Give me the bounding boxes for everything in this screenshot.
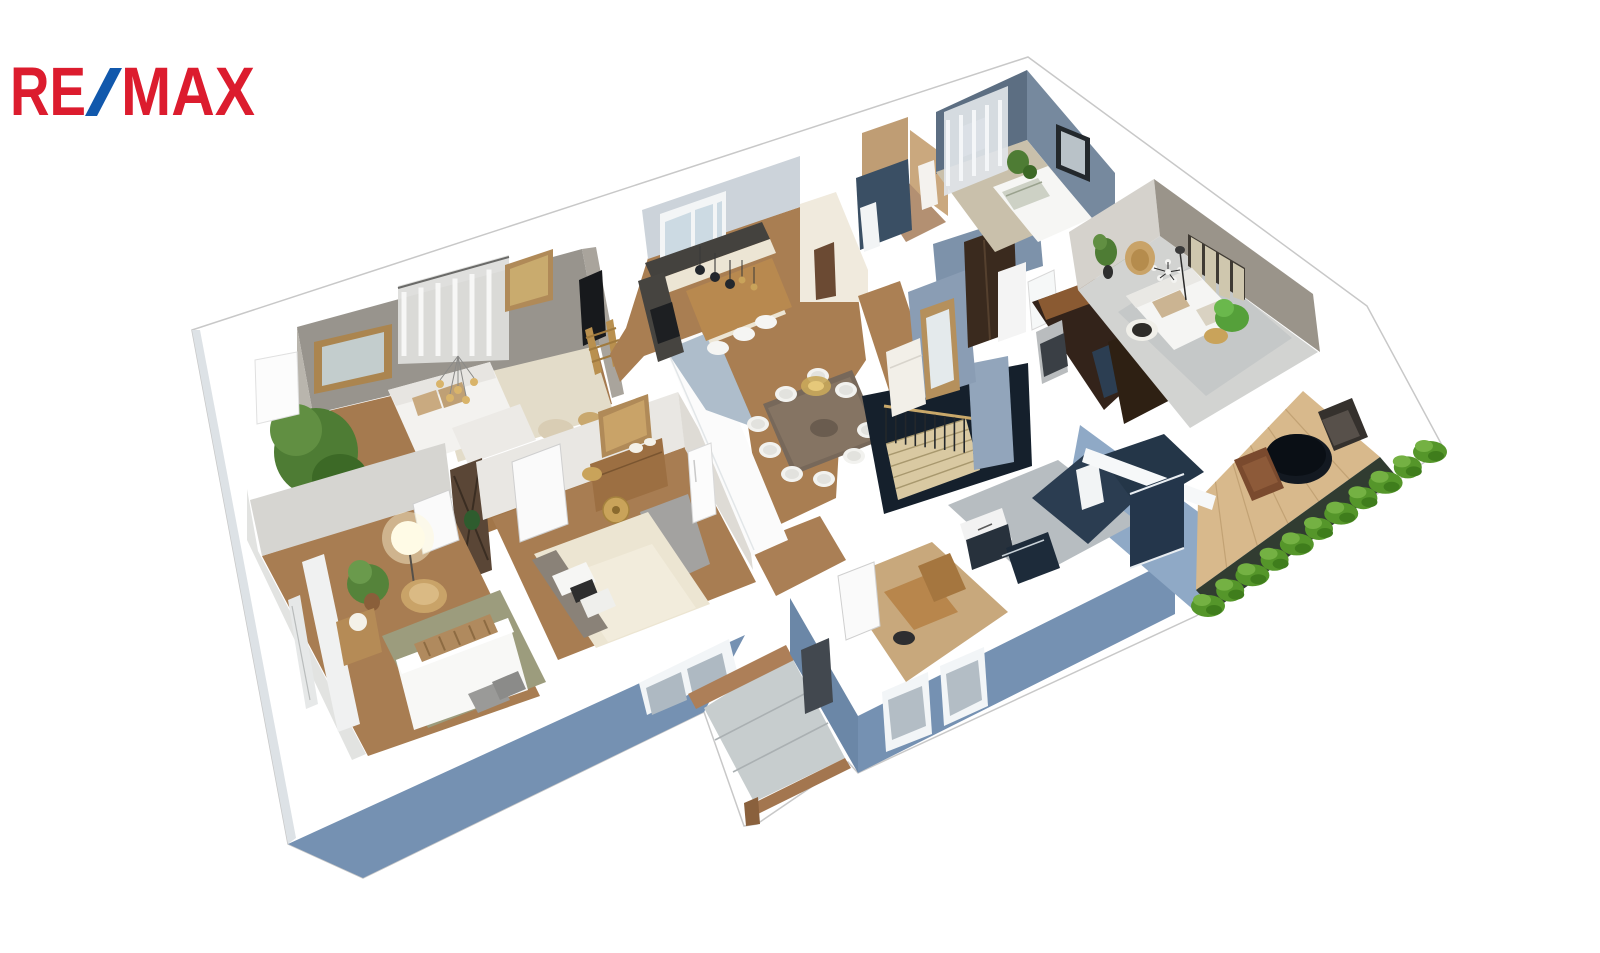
svg-text:RE: RE bbox=[10, 53, 86, 130]
svg-text:MAX: MAX bbox=[121, 53, 255, 130]
